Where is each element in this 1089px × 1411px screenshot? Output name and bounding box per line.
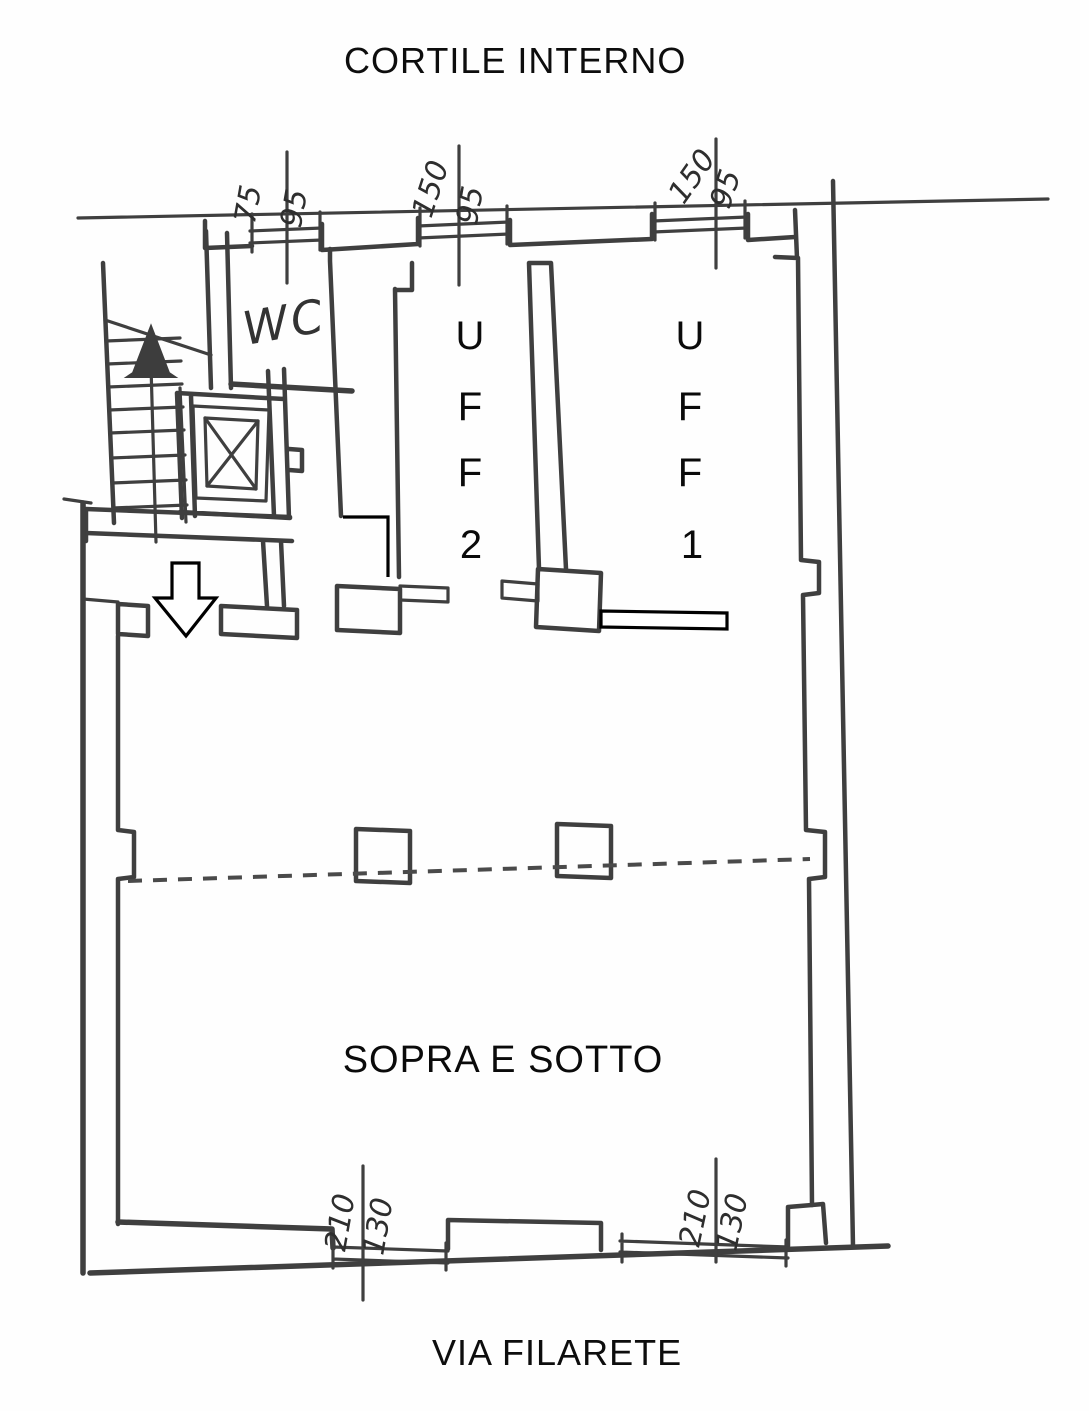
window-sills (250, 217, 747, 243)
pier-b (337, 586, 400, 633)
door-annotation-bracket (343, 517, 388, 577)
left-wall-pier (118, 604, 148, 636)
left-wall-inner (118, 636, 134, 1224)
office2-letter-u: U (456, 314, 485, 358)
floor-plan-drawing: 75 95 150 95 150 95 210 130 210 130 WC U… (0, 0, 1089, 1411)
right-exterior-wall (775, 181, 853, 1246)
office2-number: 2 (460, 523, 482, 567)
pier-a (221, 606, 297, 638)
stair-up-arrow-icon (127, 326, 175, 377)
dim-top-left-width: 75 (228, 183, 269, 227)
right-wall-outer (833, 181, 853, 1246)
wc-label: WC (239, 288, 331, 356)
dim-bottom-left-width: 210 (318, 1191, 362, 1253)
dim-top-left-height: 95 (274, 187, 315, 231)
right-wall-inner (775, 257, 825, 1205)
room-labels: WC U F F 2 U F F 1 SOPRA E SOTTO (239, 288, 705, 1081)
elevator-x-mark-icon (205, 418, 258, 489)
level-separator-dashed-line (128, 859, 810, 881)
wc-left-wall (206, 231, 231, 388)
bottom-wall-inner-left (118, 1222, 333, 1248)
dim-top-mid-height: 95 (450, 184, 491, 228)
street-label: VIA FILARETE (432, 1332, 682, 1374)
bottom-wall-outer (90, 1246, 888, 1273)
office2-letter-f1: F (458, 385, 482, 429)
office1-number: 1 (681, 523, 703, 567)
partition-annotation-bar (601, 611, 727, 629)
office2-left-wall (330, 249, 448, 633)
pier-c (536, 569, 601, 631)
office1-letter-u: U (676, 314, 705, 358)
bottom-wall (90, 1159, 888, 1300)
courtyard-boundary-line (78, 199, 1048, 218)
office2-letter-f2: F (458, 451, 482, 495)
pier-a-stem (263, 541, 284, 606)
bottom-right-step (788, 1204, 826, 1246)
pier-c-ledge (502, 581, 538, 601)
bottom-raised-wall (448, 1220, 601, 1250)
pier-b-ledge (400, 586, 448, 602)
elevator (177, 369, 302, 518)
left-exterior-wall (83, 503, 148, 1273)
central-wall-lines (529, 263, 566, 569)
office1-letter-f1: F (678, 385, 702, 429)
bottom-dimension-lines (363, 1159, 716, 1300)
block-bottom-band (86, 509, 292, 541)
pillar-right (557, 824, 611, 878)
staircase (103, 231, 231, 542)
main-room-features (128, 824, 810, 883)
entrance-down-arrow-icon (155, 563, 216, 636)
floor-plan-page: CORTILE INTERNO (0, 0, 1089, 1411)
top-wall (78, 139, 1048, 285)
office1-letter-f2: F (678, 451, 702, 495)
main-room-label: SOPRA E SOTTO (343, 1039, 664, 1081)
office2-wall-lines (330, 249, 412, 577)
left-wall-step (83, 599, 118, 602)
